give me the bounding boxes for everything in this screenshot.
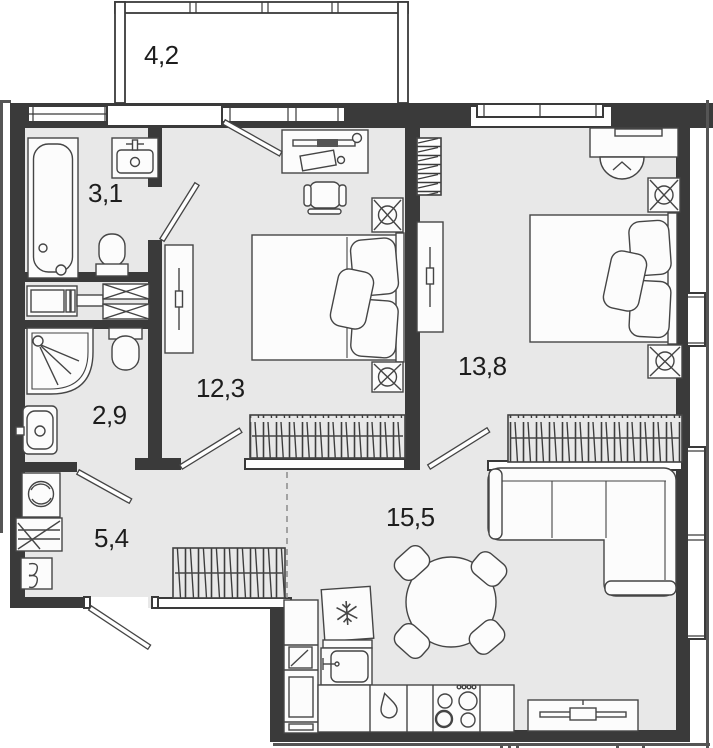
room-area-bedroom-1: 12,3 (196, 373, 245, 404)
utility-cabinet (27, 286, 77, 316)
double-bed-1 (252, 233, 404, 362)
dresser (590, 128, 678, 157)
nightstand-lamp-3 (648, 178, 680, 212)
hanger-wardrobe-bedroom-2 (508, 415, 682, 462)
bedroom-1-wardrobe-front (245, 459, 405, 469)
balcony-rail-right (398, 2, 408, 103)
right-window-1 (687, 293, 705, 346)
floor-plan-drawing (0, 0, 713, 748)
bathtub (28, 138, 78, 278)
balcony-window-band (222, 107, 345, 122)
washing-machine (22, 473, 60, 517)
kitchen-tall-column (284, 600, 318, 733)
room-area-bathroom: 3,1 (88, 178, 123, 209)
kitchen-sink (321, 648, 372, 685)
room-area-shower-room: 2,9 (92, 400, 127, 431)
wall-bottom-hallway (10, 597, 87, 608)
toilet-shower-room (109, 328, 142, 370)
drawer (289, 724, 313, 730)
nightstand-lamp-4 (648, 345, 682, 378)
entrance-door-post-left (84, 597, 90, 608)
entrance-door (89, 606, 151, 649)
bathroom-door-opening (148, 187, 162, 240)
wall-niche-left (107, 105, 222, 126)
dining-table (391, 542, 511, 662)
bathroom-sink (112, 138, 158, 178)
office-chair (304, 182, 346, 214)
room-area-bedroom-2: 13,8 (458, 351, 507, 382)
hanger-wardrobe-bedroom-1 (250, 415, 405, 458)
desk-lamp-symbol (353, 134, 362, 143)
nightstand-lamp-1 (372, 198, 403, 232)
kitchen-counter-row (318, 685, 514, 732)
vent-shaft-2 (103, 304, 149, 319)
room-area-hallway: 5,4 (94, 523, 129, 554)
tv-stand (528, 700, 638, 731)
wall-bath-corridor-b (148, 240, 162, 462)
double-bed-2 (530, 213, 677, 344)
low-partition-band (155, 598, 291, 608)
vent-shaft-1 (103, 284, 149, 299)
oven-cabinet (289, 677, 313, 717)
hook-cabinet (21, 558, 52, 589)
balcony-rail-left (115, 2, 125, 103)
entrance-door-post-right (152, 597, 158, 608)
tall-wardrobe-bedroom-2 (417, 222, 443, 332)
wall-kitchen-left (270, 600, 284, 742)
microwave (289, 647, 312, 668)
counter-strip (323, 640, 372, 648)
shoe-rack (16, 518, 62, 551)
desk (282, 130, 368, 173)
right-window-2 (687, 447, 705, 639)
shaft-connector (77, 295, 103, 306)
room-area-living-kitchen: 15,5 (386, 502, 435, 533)
toilet-bathroom (96, 234, 128, 276)
floor-plan: 4,2 3,1 2,9 5,4 12,3 13,8 15,5 (0, 0, 713, 748)
coat-wardrobe (173, 548, 285, 598)
room-area-balcony: 4,2 (144, 40, 179, 71)
nightstand-lamp-2 (372, 362, 403, 392)
wall-shower-hallway-a (25, 462, 77, 472)
wall-shower-hallway-b (135, 458, 181, 470)
radiator-shaft (417, 138, 441, 195)
tall-wardrobe-bedroom-1 (165, 245, 193, 353)
fridge (321, 586, 374, 641)
